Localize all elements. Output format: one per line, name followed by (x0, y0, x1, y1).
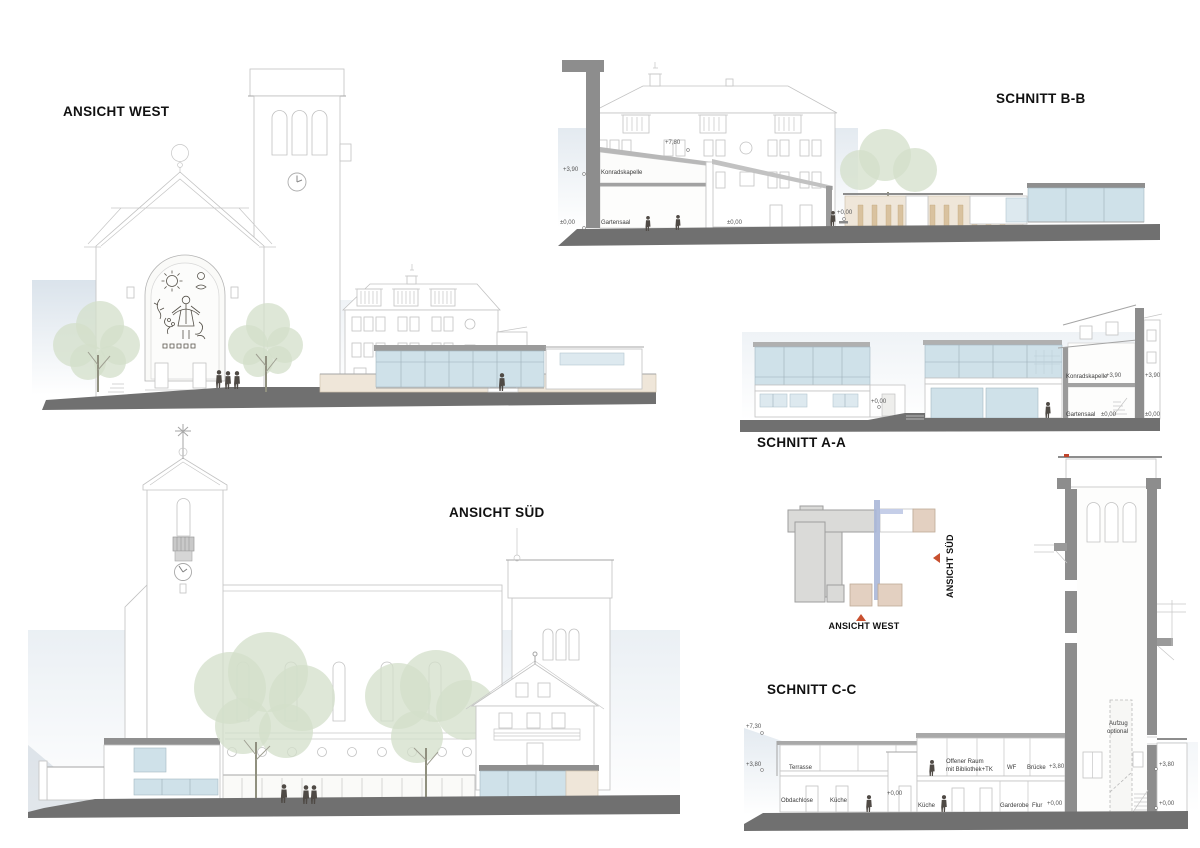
garden-pavilion (970, 183, 1145, 224)
glass-pavilion (374, 345, 644, 389)
level-label: +0,00 (887, 791, 902, 797)
room-label-flur: Flur (1032, 803, 1042, 809)
room-label-aufzug: Aufzug (1109, 721, 1128, 727)
level-label: +0,00 (1159, 801, 1174, 807)
clock-icon (288, 173, 306, 191)
bell-louvre (173, 537, 194, 551)
dormer (355, 289, 383, 306)
level-label: +0,00 (871, 399, 886, 405)
level-label: ±0,00 (1145, 412, 1160, 418)
schnitt-cc-title: SCHNITT C-C (767, 683, 857, 697)
cut-wall (1147, 489, 1157, 735)
room-label-gartensaal: Gartensaal (601, 220, 630, 226)
level-label: ±0,00 (1101, 412, 1116, 418)
room-label-konradskapelle: Konradskapelle (1066, 374, 1107, 380)
level-label: ±0,00 (727, 220, 742, 226)
cut-wall (1135, 308, 1144, 427)
room-label-gartensaal: Gartensaal (1066, 412, 1095, 418)
room-label-offener-raum: mit Bibliothek+TK (946, 767, 993, 773)
room-label-terrasse: Terrasse (789, 765, 812, 771)
dormer (621, 115, 651, 133)
schnitt-bb-title: SCHNITT B-B (996, 92, 1086, 106)
existing-building-cut (1058, 305, 1162, 427)
level-label: +0,00 (1047, 801, 1062, 807)
cut-wall (586, 70, 600, 228)
portal-door (193, 363, 206, 388)
level-label: +3,80 (1159, 762, 1174, 768)
room-label-konradskapelle: Konradskapelle (601, 170, 642, 176)
link-building (886, 752, 918, 812)
room-label-bruecke: Brücke (1027, 765, 1046, 771)
room-label-aufzug: optional (1107, 729, 1128, 735)
level-label: +3,90 (1106, 373, 1121, 379)
ansicht-west-title: ANSICHT WEST (63, 105, 169, 119)
room-label-kueche: Küche (918, 803, 935, 809)
portal-door (155, 363, 168, 388)
schnitt-aa-title: SCHNITT A-A (757, 436, 846, 450)
roof-accent (1064, 454, 1069, 457)
key-ansicht-sued-label: ANSICHT SÜD (946, 534, 955, 598)
cross-finial (175, 424, 191, 459)
room-label-garderobe: Garderobe (1000, 803, 1029, 809)
elevator-shaft (1110, 700, 1132, 812)
gable-orb-finial (172, 145, 189, 174)
level-label: +3,90 (563, 167, 578, 173)
ansicht-sued-title: ANSICHT SÜD (449, 506, 545, 520)
new-building-right (923, 340, 1062, 418)
schnitt-cc-drawing (740, 450, 1200, 838)
architectural-drawing-sheet: ANSICHT WEST SCHNITT B-B SCHNITT A-A ANS… (0, 0, 1200, 848)
level-label: +7,80 (665, 140, 680, 146)
ansicht-sued-drawing (25, 418, 687, 830)
new-building-left (753, 342, 870, 417)
level-label: ±0,00 (560, 220, 575, 226)
label-leader (514, 528, 520, 561)
level-label: +7,30 (746, 724, 761, 730)
clock-icon (175, 564, 192, 581)
room-label-wf: WF (1007, 765, 1016, 771)
level-label: +3,80 (746, 762, 761, 768)
cut-wall (1065, 489, 1077, 815)
level-label: +0,00 (837, 210, 852, 216)
ground (744, 811, 1188, 831)
key-ansicht-west-label: ANSICHT WEST (825, 622, 903, 631)
level-label: +3,80 (1049, 764, 1064, 770)
level-label: +3,90 (1145, 373, 1160, 379)
room-label-offener-raum: Offener Raum (946, 759, 984, 765)
sky-gradient (744, 728, 782, 815)
room-label-obdachlose: Obdachlose (781, 798, 813, 804)
schnitt-bb-drawing (555, 55, 1165, 250)
room-label-kueche: Küche (830, 798, 847, 804)
